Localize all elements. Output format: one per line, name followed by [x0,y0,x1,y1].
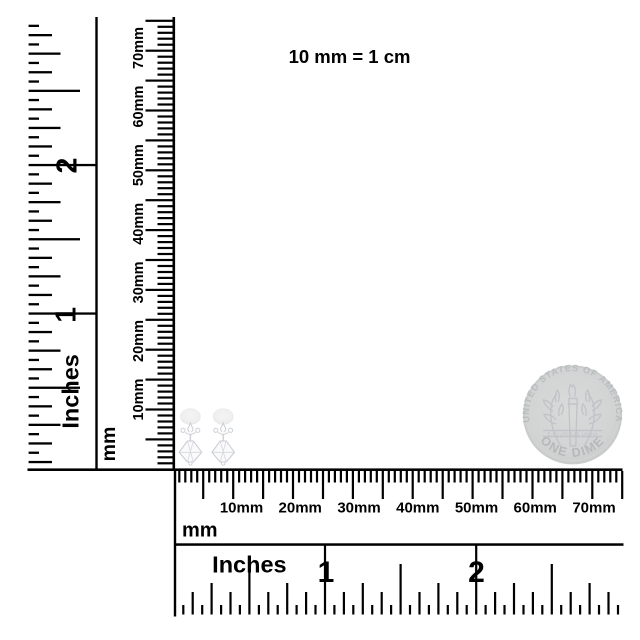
svg-text:40mm: 40mm [396,499,439,516]
svg-text:70mm: 70mm [572,499,615,516]
svg-text:Inches: Inches [58,354,84,428]
svg-text:50mm: 50mm [455,499,498,516]
svg-text:mm: mm [98,427,120,462]
svg-text:30mm: 30mm [131,261,147,303]
svg-text:20mm: 20mm [279,499,322,516]
svg-text:10mm: 10mm [220,499,263,516]
svg-text:2: 2 [51,158,83,174]
svg-text:70mm: 70mm [131,27,147,69]
svg-text:60mm: 60mm [514,499,557,516]
svg-text:40mm: 40mm [131,203,147,245]
svg-text:20mm: 20mm [131,320,147,362]
svg-text:60mm: 60mm [131,86,147,128]
svg-text:30mm: 30mm [337,499,380,516]
svg-text:1: 1 [50,307,82,323]
svg-text:E PLURIBUS UNUM: E PLURIBUS UNUM [548,432,598,437]
svg-text:2: 2 [468,556,485,589]
svg-text:1: 1 [318,556,335,589]
svg-text:10mm: 10mm [131,379,147,421]
svg-text:Inches: Inches [212,551,286,577]
svg-text:mm: mm [182,520,218,542]
svg-text:10 mm = 1 cm: 10 mm = 1 cm [289,46,411,67]
svg-text:50mm: 50mm [131,144,147,186]
